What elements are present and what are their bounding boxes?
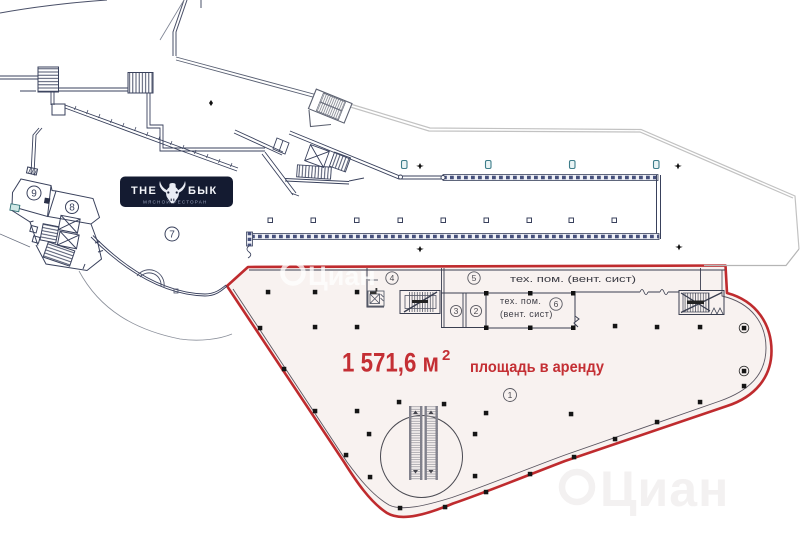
svg-text:6: 6 [554, 299, 559, 309]
svg-text:5: 5 [472, 273, 477, 283]
svg-text:2: 2 [474, 306, 479, 316]
svg-text:Циан: Циан [308, 261, 376, 291]
svg-text:1 571,6 м: 1 571,6 м [342, 348, 439, 378]
svg-text:Циан: Циан [600, 461, 729, 517]
svg-text:тех. пом. (вент. сист): тех. пом. (вент. сист) [510, 274, 636, 284]
svg-text:1: 1 [508, 390, 513, 400]
svg-text:9: 9 [31, 189, 37, 200]
svg-text:7: 7 [169, 230, 175, 241]
svg-text:4: 4 [390, 273, 395, 283]
svg-text:(вент. сист): (вент. сист) [500, 309, 553, 319]
svg-text:3: 3 [454, 306, 459, 316]
svg-text:БЫК: БЫК [188, 185, 218, 197]
svg-text:тех. пом.: тех. пом. [500, 296, 541, 306]
svg-text:площадь в аренду: площадь в аренду [470, 359, 604, 376]
svg-text:МЯСНОЙ РЕСТОРАН: МЯСНОЙ РЕСТОРАН [143, 198, 208, 205]
svg-text:8: 8 [69, 203, 75, 214]
svg-text:THE: THE [131, 185, 157, 197]
svg-text:2: 2 [442, 347, 450, 364]
